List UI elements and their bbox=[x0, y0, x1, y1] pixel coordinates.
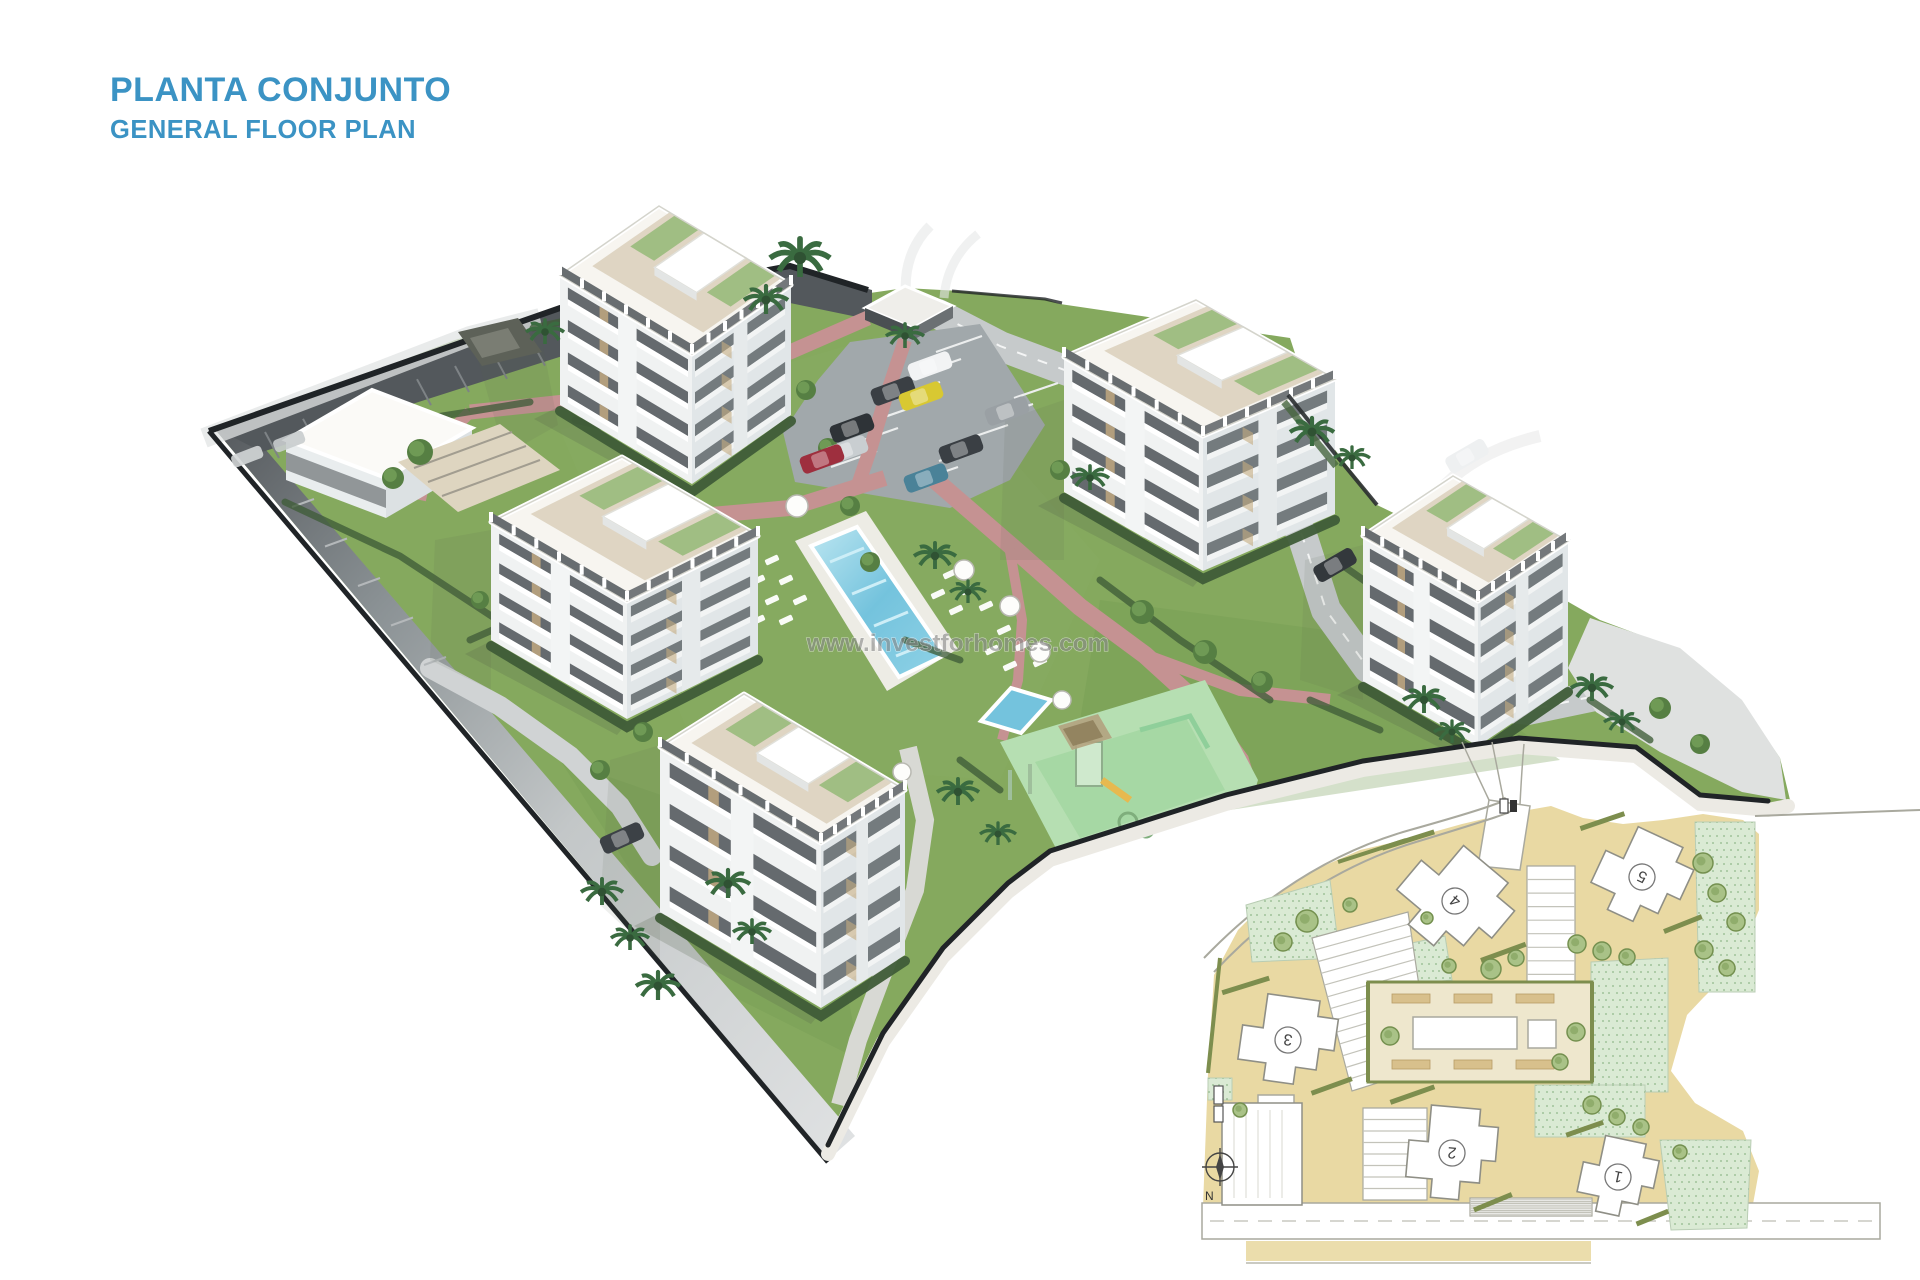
svg-text:N: N bbox=[1205, 1189, 1214, 1203]
svg-text:GENERAL FLOOR PLAN: GENERAL FLOOR PLAN bbox=[110, 116, 416, 144]
svg-text:2: 2 bbox=[1447, 1143, 1457, 1161]
svg-text:PLANTA CONJUNTO: PLANTA CONJUNTO bbox=[110, 71, 451, 109]
svg-text:www.investforhomes.com: www.investforhomes.com bbox=[806, 630, 1110, 657]
